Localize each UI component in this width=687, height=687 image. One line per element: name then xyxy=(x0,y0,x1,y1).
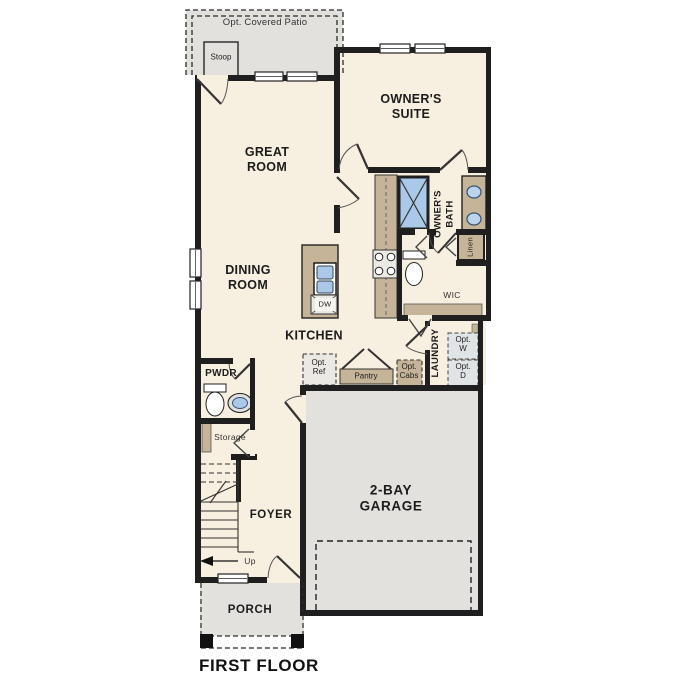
wic-shelf xyxy=(404,304,482,316)
wall-right-upper xyxy=(486,47,491,321)
wall-bath-vertical xyxy=(397,229,402,320)
opening-wic-hall-door xyxy=(408,315,432,321)
wall-hall-pier xyxy=(334,205,340,233)
opt-dryer xyxy=(448,360,478,386)
pwdr-toilet-bowl xyxy=(206,392,224,416)
dishwasher-label-bg xyxy=(315,298,335,311)
porch-post-right xyxy=(291,634,304,648)
vanity-sink-2 xyxy=(467,213,481,225)
opening-stoop-door xyxy=(197,75,228,81)
wall-linen-top xyxy=(456,229,486,235)
garage-floor xyxy=(303,388,480,612)
kitchen-counter xyxy=(375,175,397,318)
opening-front-door xyxy=(267,577,300,583)
stoop-pad xyxy=(204,42,238,77)
wall-pwdr-right xyxy=(250,358,255,427)
sink-bowl-top xyxy=(317,266,333,279)
sink-bowl-bottom xyxy=(317,281,333,293)
storage-shelf xyxy=(202,421,211,452)
opening-wic-bath-door xyxy=(436,229,456,235)
opt-refrigerator xyxy=(303,354,336,385)
opening-bath-door xyxy=(440,167,468,173)
opening-suite-door xyxy=(340,167,368,173)
porch-post-left xyxy=(200,634,213,648)
bath-toilet-bowl xyxy=(406,263,423,286)
opt-cabs-cabinet xyxy=(397,360,422,386)
pwdr-sink-bowl xyxy=(233,398,248,409)
opening-toilet-door xyxy=(415,229,427,235)
wall-laundry-left xyxy=(425,350,430,390)
wall-garage-bottom xyxy=(300,610,483,616)
opening-garage-door xyxy=(300,395,306,423)
vanity-sink-1 xyxy=(467,186,481,198)
wall-left xyxy=(195,75,201,583)
opening-storage-door xyxy=(250,430,255,456)
owners-suite-floor xyxy=(340,53,486,167)
opening-laundry-door xyxy=(425,326,430,350)
wall-great-suite-divider xyxy=(334,47,340,173)
opt-washer xyxy=(448,333,478,359)
floor-plan-page: Opt. Covered Patio Stoop GREAT ROOM OWNE… xyxy=(0,0,687,687)
wall-right-lower xyxy=(478,315,483,615)
opening-pwdr-door xyxy=(233,358,250,364)
floor-plan-drawing xyxy=(0,0,687,687)
wall-storage-right xyxy=(250,418,255,432)
wall-garage-top xyxy=(300,385,483,391)
linen-closet xyxy=(458,234,484,260)
wall-suite-top xyxy=(334,47,491,53)
pantry-cabinet xyxy=(340,369,393,384)
wall-pwdr-bottom xyxy=(195,418,255,424)
pwdr-toilet-tank xyxy=(204,384,226,392)
porch-floor xyxy=(200,583,304,636)
wall-linen-bottom xyxy=(456,260,486,266)
